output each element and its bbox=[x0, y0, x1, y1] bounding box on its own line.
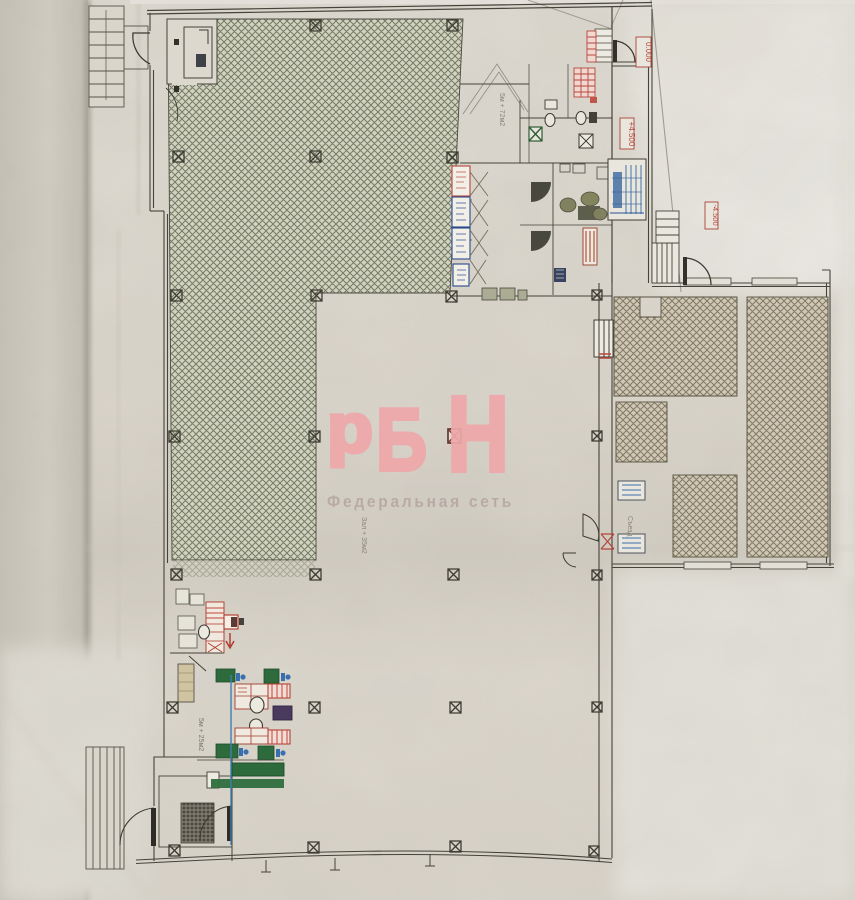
svg-text:0.000: 0.000 bbox=[644, 42, 653, 63]
svg-text:Б: Б bbox=[376, 390, 427, 489]
svg-text:+4.500: +4.500 bbox=[627, 122, 636, 147]
svg-text:Зал + 35м2: Зал + 35м2 bbox=[360, 517, 367, 554]
svg-text:Съезд: Съезд bbox=[626, 516, 633, 536]
svg-text:5м + 25м2: 5м + 25м2 bbox=[197, 718, 204, 751]
svg-text:Федеральная сеть: Федеральная сеть bbox=[327, 492, 514, 511]
svg-text:Н: Н bbox=[447, 373, 509, 494]
svg-text:р: р bbox=[327, 389, 373, 467]
svg-text:5м + 72м2: 5м + 72м2 bbox=[498, 93, 505, 126]
svg-text:-4.500: -4.500 bbox=[711, 204, 720, 225]
